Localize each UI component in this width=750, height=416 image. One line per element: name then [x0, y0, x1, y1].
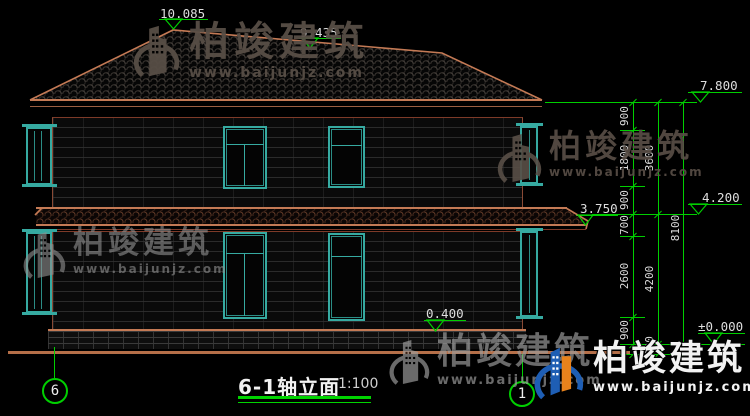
second-floor-wall — [52, 117, 523, 207]
window-2f-center — [223, 126, 267, 189]
left-bay-window-2f — [26, 127, 52, 185]
right-bay-window-1f — [520, 231, 538, 317]
extension-line — [620, 344, 745, 345]
elevation-label-floor2: 4.200 — [702, 190, 740, 205]
brick-plinth — [48, 331, 526, 349]
left-bay-window-1f — [26, 232, 52, 313]
grid-leader-1 — [522, 354, 523, 381]
level-triangle-eave — [692, 92, 709, 102]
dim-label: 4200 — [643, 244, 655, 314]
right-bay-window-2f — [520, 126, 538, 184]
level-triangle-zero — [705, 333, 722, 344]
level-triangle-floor2 — [690, 204, 707, 214]
title-underline-thick — [238, 396, 371, 399]
band-top-line — [36, 207, 567, 209]
elevation-label-canopy: 3.750 — [580, 201, 618, 216]
title-underline-thin — [238, 402, 371, 403]
door-window-1f-center — [223, 232, 267, 319]
window-1f-right — [328, 233, 365, 321]
elevation-label-ridge: 9.435 — [300, 25, 338, 40]
band-bottom-line — [36, 224, 586, 226]
elevation-label-plinth: 0.400 — [426, 306, 464, 321]
elevation-label-peak: 10.085 — [160, 6, 205, 21]
roof-tile-surface — [30, 28, 542, 100]
grid-bubble-6: 6 — [42, 378, 68, 404]
drawing-scale: 1:100 — [338, 376, 378, 392]
bay-window-cap — [22, 312, 57, 315]
dim-label: 8100 — [669, 193, 681, 263]
dimension-chain-line-3 — [683, 102, 684, 354]
dim-label: 300 — [643, 311, 655, 381]
bay-window-cap — [516, 316, 543, 319]
grid-bubble-1: 1 — [509, 381, 535, 407]
window-2f-right — [328, 126, 365, 188]
eave-fascia-line — [30, 99, 542, 101]
dim-label: 3600 — [643, 123, 655, 193]
bay-window-cap — [22, 184, 57, 187]
watermark-url-text: www.baijunjz.com — [593, 380, 750, 395]
watermark-brand-text: 柏竣建筑 — [593, 342, 750, 377]
eave-soffit-line — [30, 106, 542, 107]
dim-label: 900 — [618, 295, 630, 365]
interfloor-tile-band — [36, 209, 588, 224]
elevation-drawing-canvas: 10.085 9.435 7.800 4.200 3.750 0.400 ±0.… — [0, 0, 750, 416]
ground-line — [8, 351, 630, 354]
elevation-label-zero: ±0.000 — [698, 319, 743, 334]
dimension-chain-line-2 — [658, 102, 659, 354]
elevation-label-eave: 7.800 — [700, 78, 738, 93]
band-belt-line — [36, 229, 586, 230]
bay-window-cap — [516, 183, 543, 186]
grid-leader-6 — [54, 347, 55, 378]
